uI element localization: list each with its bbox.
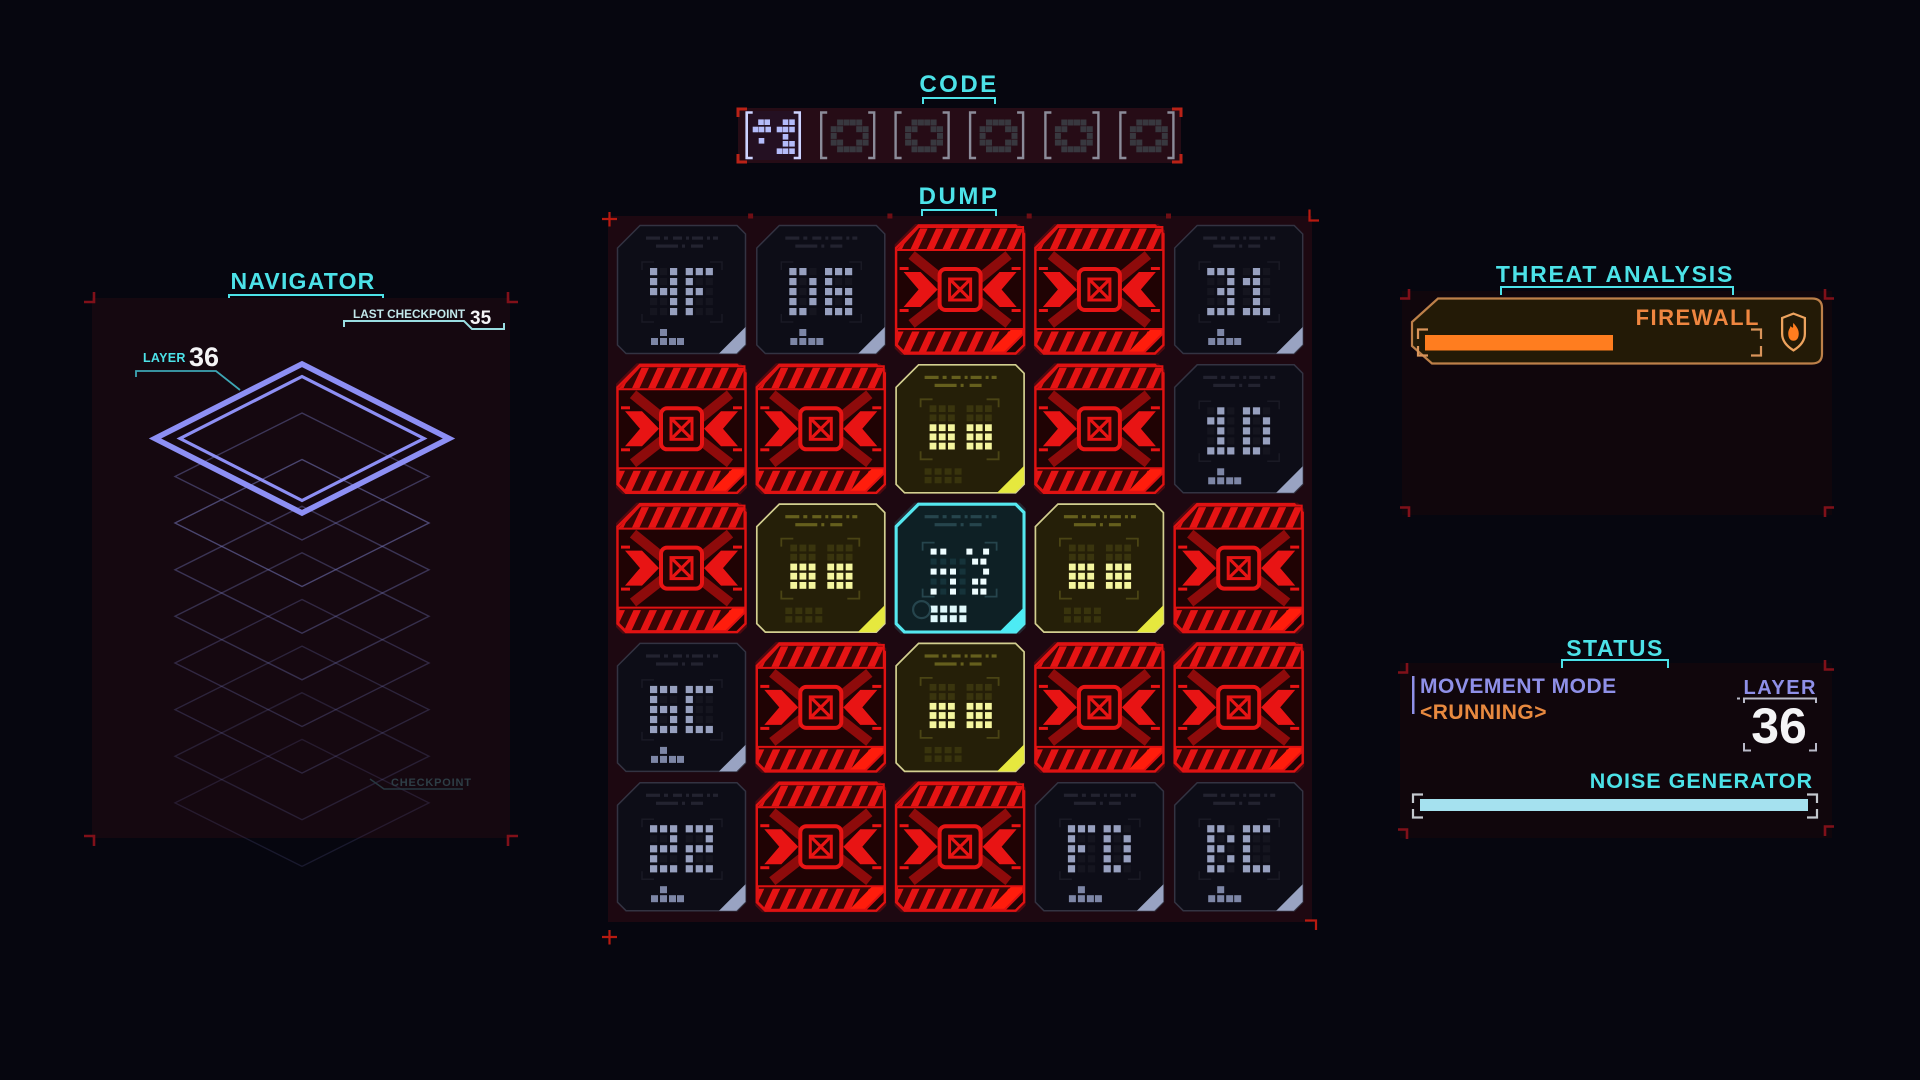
svg-text:LAYER: LAYER xyxy=(1744,677,1817,699)
svg-text:LAYER: LAYER xyxy=(143,351,186,365)
svg-text:THREAT ANALYSIS: THREAT ANALYSIS xyxy=(1496,261,1734,287)
svg-text:36: 36 xyxy=(189,342,219,372)
svg-text:CODE: CODE xyxy=(919,71,998,98)
svg-text:36: 36 xyxy=(1751,698,1807,754)
svg-text:FIREWALL: FIREWALL xyxy=(1636,305,1760,330)
svg-text:MOVEMENT MODE: MOVEMENT MODE xyxy=(1420,675,1617,698)
svg-text:NAVIGATOR: NAVIGATOR xyxy=(231,268,376,294)
svg-text:LAST CHECKPOINT: LAST CHECKPOINT xyxy=(353,307,466,321)
svg-text:CHECKPOINT: CHECKPOINT xyxy=(391,777,472,789)
svg-text:DUMP: DUMP xyxy=(919,183,1000,210)
svg-text:<RUNNING>: <RUNNING> xyxy=(1420,701,1547,724)
svg-text:STATUS: STATUS xyxy=(1566,635,1664,661)
svg-text:NOISE GENERATOR: NOISE GENERATOR xyxy=(1590,769,1813,793)
svg-text:35: 35 xyxy=(470,308,492,329)
